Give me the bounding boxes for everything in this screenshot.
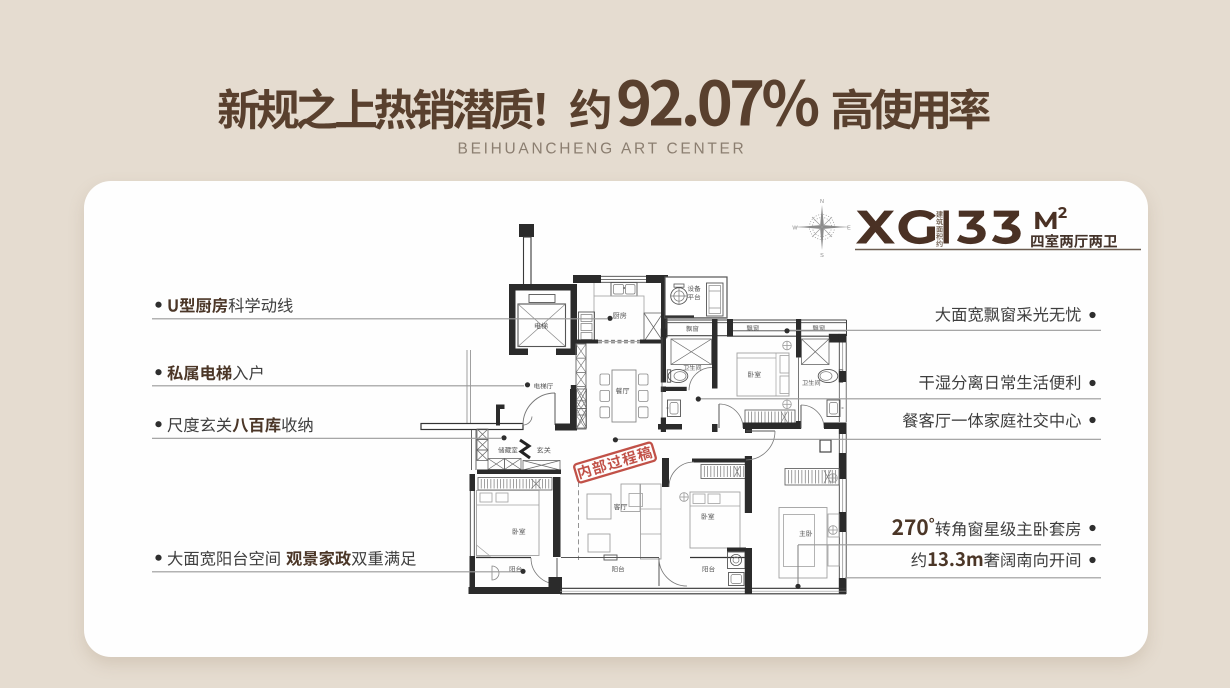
svg-text:S: S <box>820 253 824 259</box>
svg-text:W: W <box>792 226 798 232</box>
svg-text:BEIHUANCHENG ART CENTER: BEIHUANCHENG ART CENTER <box>458 141 747 158</box>
svg-text:N: N <box>820 199 824 205</box>
svg-text:E: E <box>847 226 851 232</box>
